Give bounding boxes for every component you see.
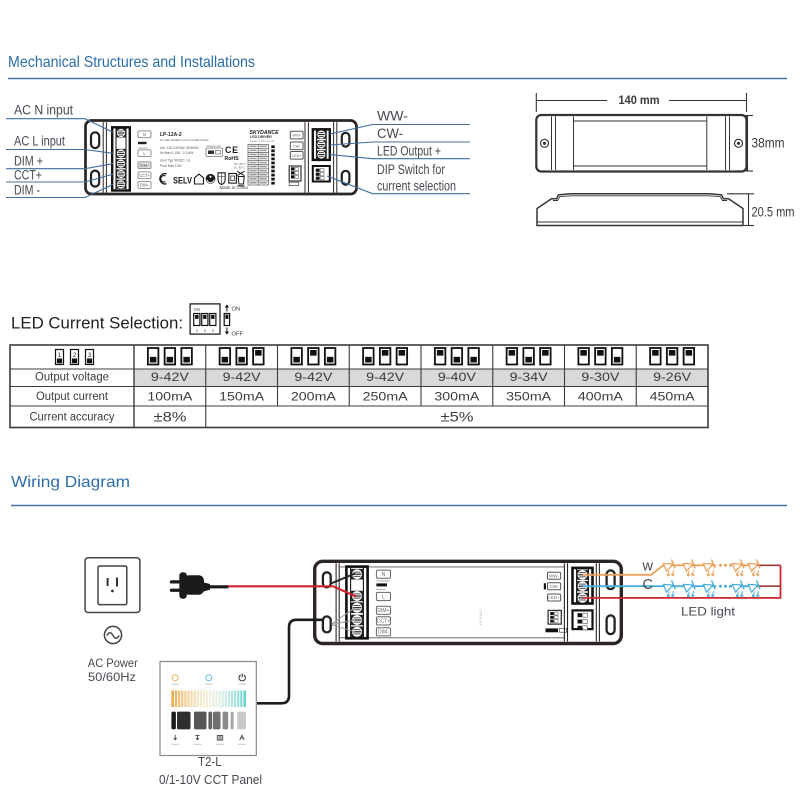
svg-text:DIM+: DIM+ (377, 608, 389, 614)
svg-text:9-34V: 9-34V (510, 370, 548, 384)
svg-text:CW-: CW- (293, 143, 302, 148)
svg-text:T2-L: T2-L (198, 755, 222, 769)
svg-text:2: 2 (203, 328, 206, 334)
svg-text:CW-: CW- (377, 126, 403, 141)
svg-text:CCT+: CCT+ (139, 173, 151, 178)
svg-text:L: L (382, 594, 385, 600)
svg-text:AC N input: AC N input (14, 103, 73, 118)
svg-text:38mm: 38mm (752, 135, 785, 151)
svg-text:CCT+: CCT+ (377, 619, 390, 625)
svg-text:LED+: LED+ (292, 153, 303, 158)
svg-text:WW-: WW- (292, 133, 301, 138)
svg-text:DIM+: DIM+ (139, 163, 150, 168)
svg-text:CE: CE (225, 145, 239, 155)
svg-text:Tc: 85°C: Tc: 85°C (234, 165, 246, 169)
svg-text:DIM-: DIM- (140, 183, 150, 188)
svg-text:Iin Max 0.15A 2-3.6W: Iin Max 0.15A 2-3.6W (160, 151, 194, 155)
svg-text:DIM-: DIM- (378, 630, 389, 636)
svg-text:OFF: OFF (232, 332, 244, 338)
svg-text:350mA: 350mA (506, 390, 551, 404)
svg-text:1: 1 (195, 328, 198, 334)
svg-text:Made in China: Made in China (220, 185, 249, 190)
svg-text:LED DRIVER: LED DRIVER (250, 135, 272, 139)
svg-text:Dealer to offer our old: Dealer to offer our old (250, 140, 275, 143)
svg-text:CCT+: CCT+ (14, 168, 42, 183)
svg-text:Uin: 100-240VAC 50/60Hz: Uin: 100-240VAC 50/60Hz (160, 146, 199, 150)
svg-text:LED Current Selection:: LED Current Selection: (11, 314, 183, 333)
svg-text:w: w (642, 558, 654, 574)
svg-text:WW-: WW- (549, 573, 559, 578)
svg-text:2: 2 (73, 352, 77, 359)
svg-text:RoHS: RoHS (225, 156, 240, 162)
svg-text:3: 3 (88, 352, 92, 359)
svg-text:WW-: WW- (377, 109, 408, 124)
svg-text:140 mm: 140 mm (619, 93, 660, 107)
svg-text:0/1-10V CCT Panel: 0/1-10V CCT Panel (159, 773, 262, 787)
svg-text:LED light: LED light (681, 604, 736, 618)
svg-text:N: N (143, 132, 146, 137)
svg-text:1: 1 (58, 352, 62, 359)
svg-text:SELV: SELV (173, 175, 193, 185)
svg-text:N: N (382, 572, 386, 578)
svg-text:Wiring Diagram: Wiring Diagram (11, 474, 130, 491)
svg-text:Output voltage: Output voltage (35, 372, 109, 384)
svg-text:ON: ON (194, 307, 201, 312)
svg-text:ON: ON (232, 307, 241, 313)
svg-text:A1-3W Variable Current LED Dri: A1-3W Variable Current LED Driver (160, 138, 209, 142)
svg-text:DIM -: DIM - (14, 183, 40, 198)
svg-text:9-42V: 9-42V (294, 370, 332, 384)
svg-text:DIP Switch for: DIP Switch for (377, 162, 445, 177)
svg-text:150mA: 150mA (219, 390, 264, 404)
svg-text:9-30V: 9-30V (581, 370, 619, 384)
svg-text:AC Power: AC Power (88, 656, 138, 670)
svg-text:9-42V: 9-42V (223, 370, 261, 384)
svg-text:200mA: 200mA (291, 390, 336, 404)
svg-text:450mA: 450mA (650, 390, 695, 404)
svg-text:20.5 mm: 20.5 mm (752, 205, 795, 220)
svg-text:Output current: Output current (36, 391, 109, 403)
svg-text:LP-12A-2: LP-12A-2 (478, 608, 483, 626)
svg-text:LED Output +: LED Output + (377, 144, 441, 159)
svg-text:50/60Hz: 50/60Hz (88, 670, 136, 684)
svg-text:AC L input: AC L input (14, 134, 65, 149)
svg-text:3: 3 (211, 328, 214, 334)
svg-text:Mechanical Structures and Inst: Mechanical Structures and Installations (8, 54, 255, 71)
svg-text:9-42V: 9-42V (151, 370, 189, 384)
svg-text:±8%: ±8% (154, 409, 187, 424)
svg-text:9-42V: 9-42V (366, 370, 404, 384)
svg-text:±5%: ±5% (441, 409, 474, 424)
svg-text:250mA: 250mA (363, 390, 408, 404)
svg-text:current selection: current selection (377, 179, 456, 194)
svg-text:400mA: 400mA (578, 390, 623, 404)
svg-text:CW-: CW- (550, 584, 559, 589)
svg-text:9-40V: 9-40V (438, 370, 476, 384)
svg-text:LED+: LED+ (548, 595, 560, 600)
svg-text:Voltage Free: Voltage Free (206, 144, 221, 148)
svg-text:9-26V: 9-26V (653, 370, 691, 384)
svg-text:100mA: 100mA (147, 390, 192, 404)
svg-text:Uout Typ 50VDC UL: Uout Typ 50VDC UL (160, 159, 191, 163)
svg-text:DIM +: DIM + (14, 154, 43, 169)
svg-text:C: C (643, 577, 653, 593)
svg-text:300mA: 300mA (434, 390, 479, 404)
svg-text:Current accuracy: Current accuracy (30, 412, 115, 424)
svg-text:Pout Max 12W: Pout Max 12W (160, 164, 183, 168)
